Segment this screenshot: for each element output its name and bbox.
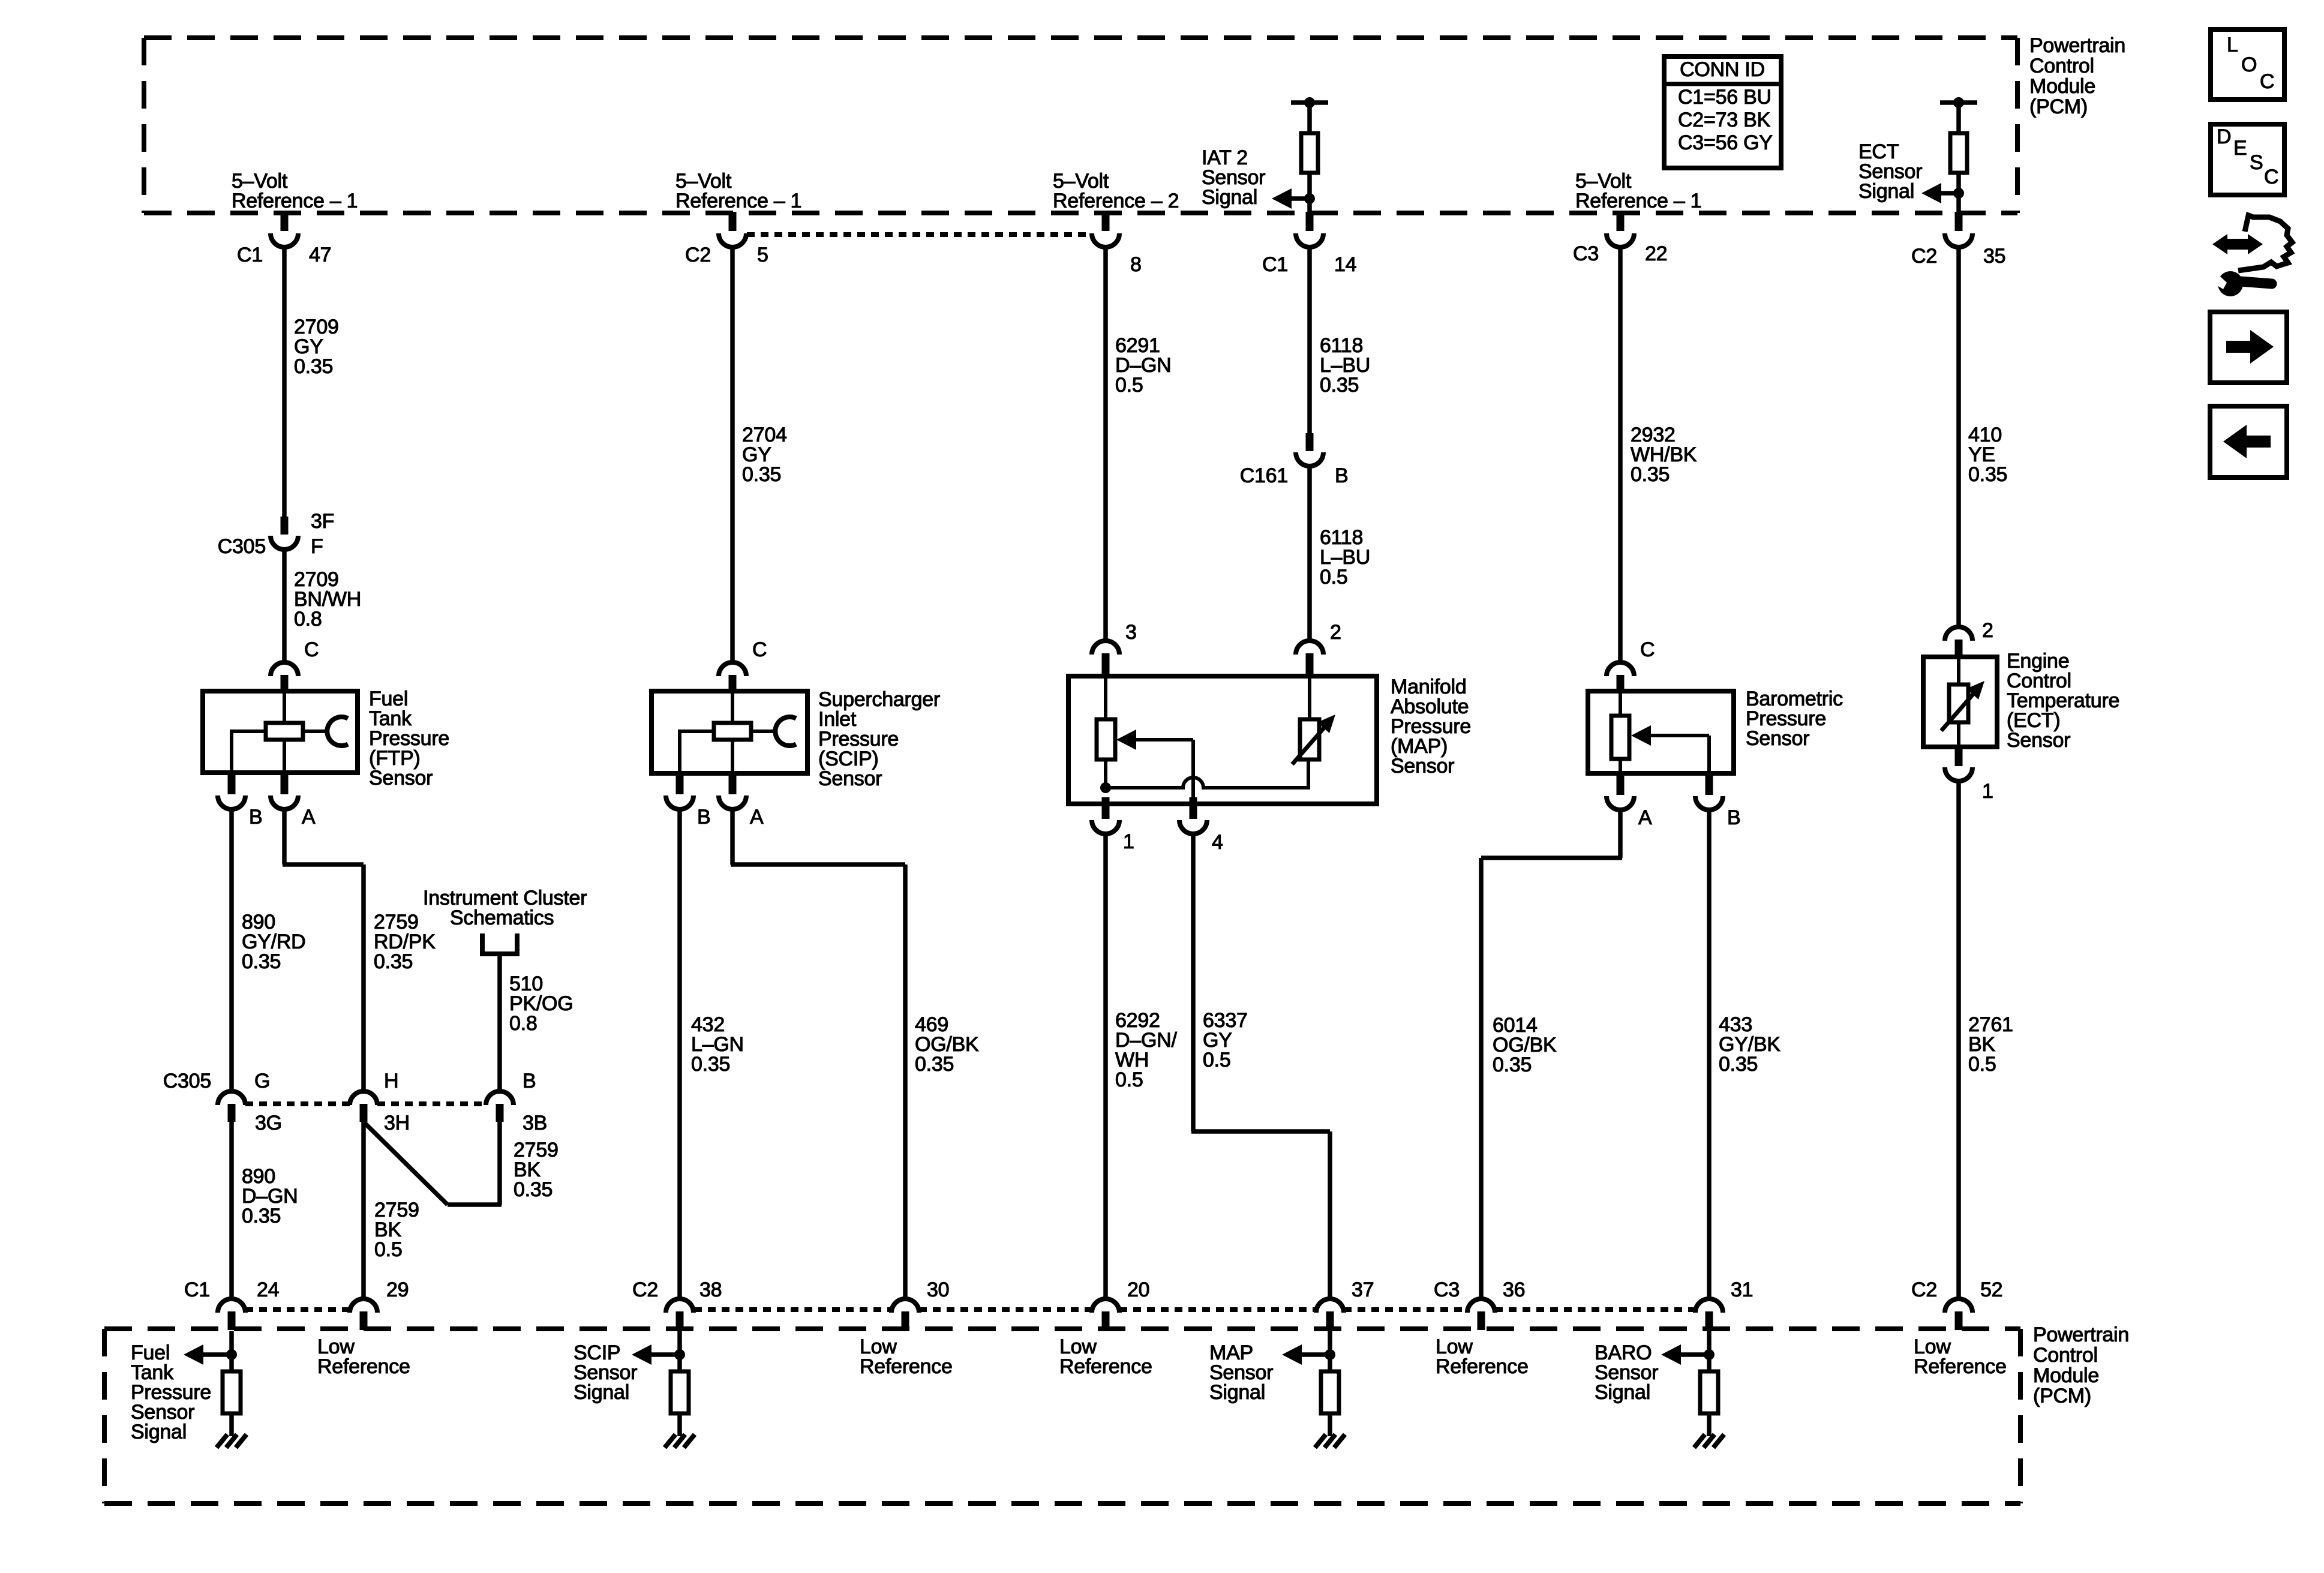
svg-text:Reference: Reference [1436,1355,1529,1378]
svg-text:Reference – 1: Reference – 1 [1575,190,1701,212]
svg-text:A: A [302,806,316,828]
svg-text:Schematics: Schematics [450,906,554,929]
svg-text:29: 29 [386,1278,409,1301]
svg-text:B: B [249,806,262,828]
svg-text:47: 47 [309,244,331,266]
svg-text:2: 2 [1982,619,1993,642]
svg-text:C1: C1 [184,1278,210,1301]
svg-text:1: 1 [1123,830,1134,853]
svg-text:30: 30 [927,1278,949,1301]
svg-text:C2: C2 [632,1278,658,1301]
svg-text:3: 3 [1125,621,1137,644]
svg-text:C: C [1640,638,1655,661]
svg-text:Reference – 1: Reference – 1 [232,190,358,212]
svg-text:Reference – 1: Reference – 1 [675,190,801,212]
svg-text:Sensor: Sensor [369,767,433,789]
svg-text:Module: Module [2029,75,2095,98]
svg-text:0.35: 0.35 [1968,463,2007,486]
svg-text:0.35: 0.35 [1320,374,1359,397]
svg-text:C305: C305 [163,1070,211,1092]
svg-text:Reference: Reference [1914,1355,2007,1378]
svg-text:8: 8 [1130,253,1142,276]
svg-text:0.8: 0.8 [294,608,322,631]
svg-text:C2: C2 [685,244,711,266]
svg-text:0.5: 0.5 [1115,374,1143,397]
svg-text:(PCM): (PCM) [2029,95,2088,118]
svg-text:B: B [1727,806,1740,829]
svg-text:Signal: Signal [574,1381,629,1404]
svg-text:3F: 3F [311,510,334,533]
svg-text:C2: C2 [1911,245,1937,268]
svg-text:Sensor: Sensor [1391,755,1454,778]
svg-text:A: A [1638,806,1652,829]
svg-text:Sensor: Sensor [818,767,882,790]
svg-text:Reference – 2: Reference – 2 [1053,190,1179,212]
svg-text:0.35: 0.35 [742,463,781,486]
svg-text:C: C [752,638,767,661]
svg-text:C1: C1 [1262,253,1288,276]
svg-text:C3: C3 [1434,1278,1460,1301]
svg-text:0.35: 0.35 [242,1205,281,1227]
svg-text:24: 24 [257,1278,279,1301]
svg-text:0.5: 0.5 [1968,1053,1996,1076]
svg-text:C: C [2260,70,2274,93]
svg-text:A: A [750,806,764,828]
svg-text:0.5: 0.5 [1115,1068,1143,1091]
svg-text:H: H [384,1070,398,1092]
svg-text:22: 22 [1645,242,1667,265]
svg-text:C161: C161 [1240,464,1288,487]
svg-text:4: 4 [1212,831,1223,854]
svg-text:Powertrain: Powertrain [2033,1323,2129,1346]
svg-text:C2=73 BK: C2=73 BK [1678,109,1771,131]
svg-text:0.35: 0.35 [242,950,281,973]
svg-text:0.35: 0.35 [374,950,413,973]
svg-text:C305: C305 [218,535,266,558]
svg-text:F: F [311,535,323,558]
svg-text:CONN ID: CONN ID [1680,58,1765,81]
svg-text:Signal: Signal [1858,180,1914,203]
svg-text:O: O [2241,53,2257,76]
svg-text:C: C [2264,166,2278,188]
svg-text:5: 5 [757,244,768,266]
svg-text:37: 37 [1352,1278,1374,1301]
svg-text:S: S [2250,151,2263,174]
svg-text:52: 52 [1980,1278,2002,1301]
svg-text:20: 20 [1127,1278,1149,1301]
svg-text:0.35: 0.35 [915,1053,954,1076]
svg-text:Signal: Signal [1202,186,1257,209]
svg-text:1: 1 [1982,780,1993,803]
svg-text:Sensor: Sensor [2007,729,2070,752]
svg-text:3H: 3H [384,1112,410,1134]
svg-text:D: D [2217,125,2231,148]
svg-text:0.8: 0.8 [509,1012,538,1035]
svg-text:E: E [2233,137,2247,160]
svg-text:0.35: 0.35 [1631,463,1670,486]
svg-text:(PCM): (PCM) [2033,1385,2091,1407]
svg-text:B: B [523,1070,536,1092]
svg-text:35: 35 [1983,245,2005,268]
svg-text:0.5: 0.5 [1203,1049,1231,1071]
svg-text:0.35: 0.35 [1493,1053,1532,1076]
svg-text:Control: Control [2029,55,2094,77]
svg-text:Reference: Reference [1059,1355,1152,1378]
svg-text:Signal: Signal [131,1421,187,1443]
svg-text:3G: 3G [255,1112,282,1134]
svg-text:Signal: Signal [1595,1381,1650,1404]
svg-text:Reference: Reference [860,1355,953,1378]
svg-text:14: 14 [1334,253,1356,276]
svg-text:0.5: 0.5 [374,1238,403,1261]
svg-text:Sensor: Sensor [1746,727,1809,750]
svg-text:Control: Control [2033,1344,2098,1367]
svg-text:Powertrain: Powertrain [2029,34,2125,57]
svg-text:0.35: 0.35 [1719,1053,1758,1076]
svg-text:B: B [1335,464,1348,487]
svg-text:C3: C3 [1573,242,1599,265]
svg-text:C1=56 BU: C1=56 BU [1678,86,1771,109]
svg-text:C2: C2 [1911,1278,1937,1301]
svg-text:0.35: 0.35 [514,1178,553,1201]
svg-text:B: B [697,806,710,828]
svg-text:0.35: 0.35 [294,355,333,378]
svg-text:0.5: 0.5 [1320,566,1348,589]
svg-text:2: 2 [1330,621,1341,644]
svg-text:3B: 3B [523,1112,547,1134]
svg-text:C: C [304,638,319,661]
svg-text:C1: C1 [237,244,263,266]
svg-text:G: G [254,1070,270,1092]
svg-text:0.35: 0.35 [691,1053,730,1076]
svg-text:Reference: Reference [317,1355,410,1378]
svg-text:31: 31 [1731,1278,1753,1301]
svg-text:38: 38 [699,1278,722,1301]
svg-text:C3=56 GY: C3=56 GY [1678,131,1773,154]
svg-text:36: 36 [1503,1278,1525,1301]
svg-text:L: L [2227,34,2238,56]
svg-text:Module: Module [2033,1364,2099,1387]
svg-text:Signal: Signal [1209,1381,1265,1404]
